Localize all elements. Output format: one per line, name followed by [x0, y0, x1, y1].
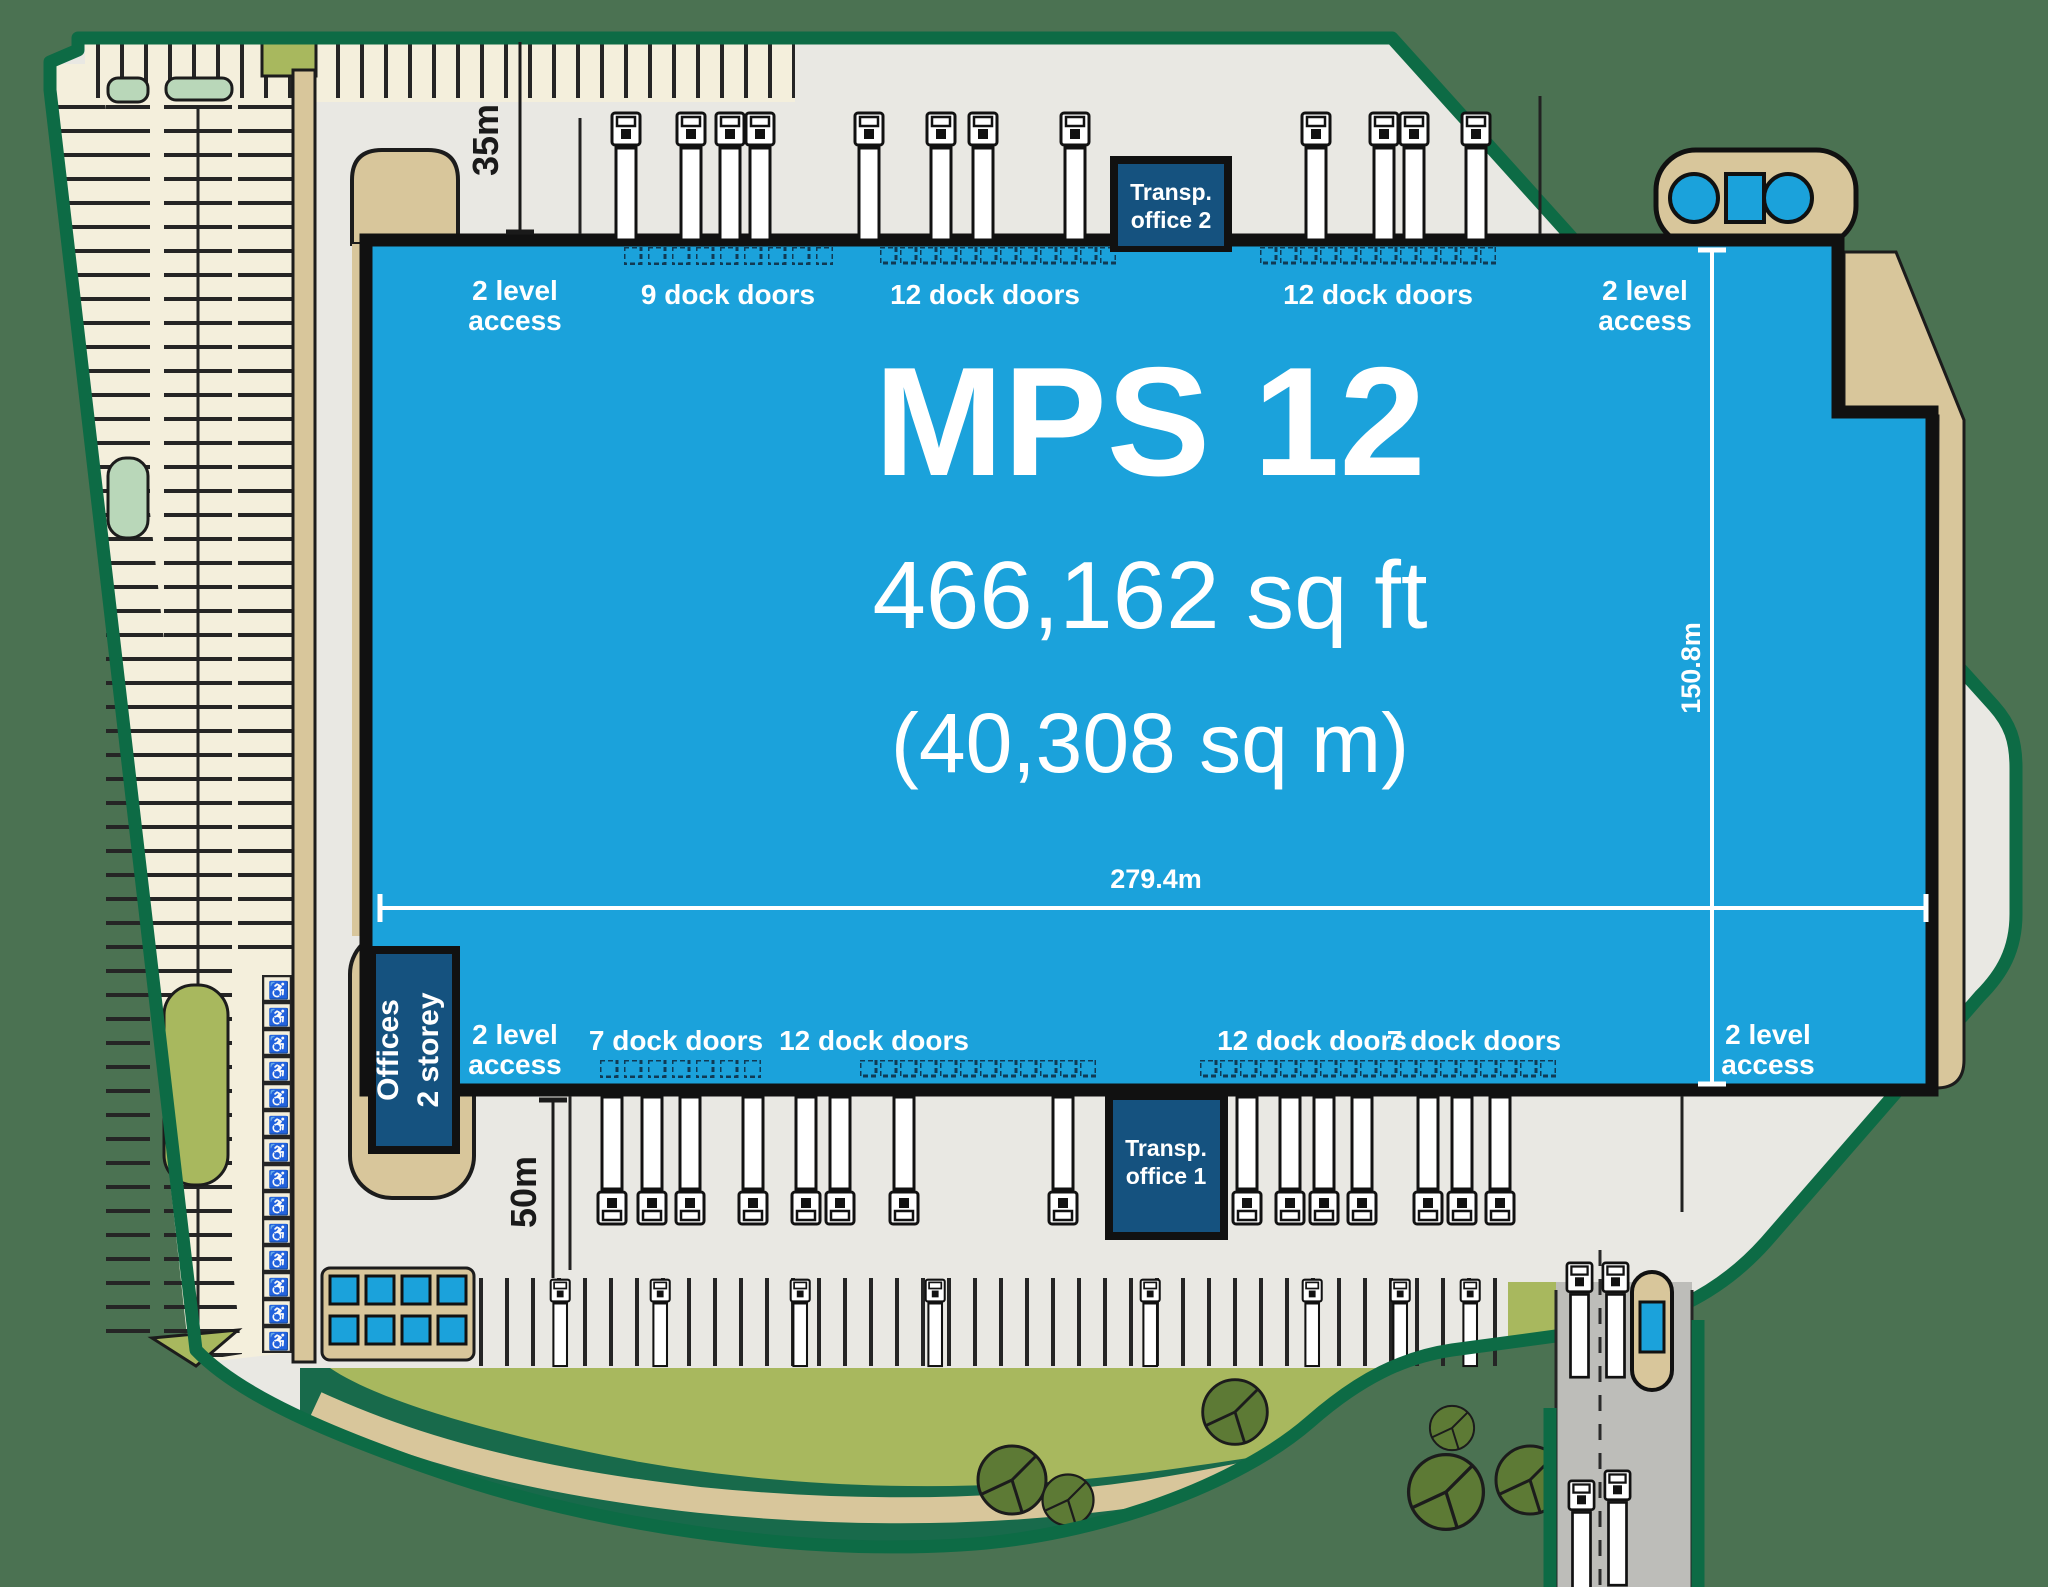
bush-icon [1203, 1380, 1268, 1445]
label-dock-n2: 12 dock doors [890, 279, 1080, 310]
truck-icon [1569, 1481, 1594, 1587]
label-dock-n3: 12 dock doors [1283, 279, 1473, 310]
dock-doors-north-12a [880, 247, 1116, 265]
truck-icon [1391, 1280, 1410, 1366]
truck-icon [791, 1280, 810, 1366]
building-area-metric: (40,308 sq m) [891, 696, 1409, 790]
truck-icon [1049, 1097, 1077, 1224]
truck-icon [826, 1097, 854, 1224]
parking-row-east [238, 104, 292, 968]
apron-north [352, 150, 458, 244]
offices-label-1: Offices [372, 999, 405, 1101]
truck-icon [1605, 1471, 1630, 1585]
warehouse-building: 2 level access 9 dock doors 12 dock door… [366, 240, 1932, 1090]
truck-icon [1567, 1263, 1592, 1377]
trailer-parking-row [478, 1278, 1508, 1366]
site-plan: ♿ [0, 0, 2048, 1587]
truck-icon [1276, 1097, 1304, 1224]
truck-icon [1141, 1280, 1160, 1366]
accessible-parking-column [262, 975, 292, 1353]
sprinkler-tank-icon [1670, 174, 1718, 222]
label-access-se: 2 level [1725, 1019, 1811, 1050]
dock-doors-south-7b [1420, 1060, 1556, 1078]
truck-icon [855, 113, 883, 240]
truck-icon [1302, 113, 1330, 240]
label-dock-s2: 12 dock doors [779, 1025, 969, 1056]
entrance-road [1550, 1250, 1698, 1587]
sidewalk [293, 70, 315, 1362]
label-access-ne: 2 level [1602, 275, 1688, 306]
transport-office-2-building [1118, 164, 1224, 246]
truck-icon [739, 1097, 767, 1224]
bush-icon [1043, 1475, 1094, 1526]
bush-icon [1409, 1455, 1484, 1530]
dock-doors-north-12b [1260, 247, 1496, 265]
truck-icon [969, 113, 997, 240]
dimension-south-yard-label: 50m [503, 1156, 544, 1228]
sprinkler-tank-icon [1764, 174, 1812, 222]
truck-icon [612, 113, 640, 240]
truck-icon [676, 1097, 704, 1224]
truck-icon [890, 1097, 918, 1224]
truck-icon [1233, 1097, 1261, 1224]
truck-icon [716, 113, 744, 240]
truck-icon [926, 1280, 945, 1366]
label-access-nw-2: access [468, 305, 561, 336]
truck-icon [677, 113, 705, 240]
truck-icon [1462, 113, 1490, 240]
truck-icon [598, 1097, 626, 1224]
truck-icon [1370, 113, 1398, 240]
truck-icon [1603, 1263, 1628, 1377]
label-dock-n1: 9 dock doors [641, 279, 815, 310]
planting-island [108, 78, 148, 102]
label-dock-s3: 12 dock doors [1217, 1025, 1407, 1056]
offices-label-2: 2 storey [412, 992, 445, 1107]
label-access-se-2: access [1721, 1049, 1814, 1080]
planting-island [166, 78, 232, 100]
truck-icon [1414, 1097, 1442, 1224]
bush-icon [978, 1446, 1046, 1514]
label-access-sw-2: access [468, 1049, 561, 1080]
truck-icon [1486, 1097, 1514, 1224]
transport-office-2: Transp. office 2 [1110, 156, 1232, 252]
pump-house-icon [1726, 174, 1764, 222]
truck-icon [746, 113, 774, 240]
dock-doors-south-12a [860, 1060, 1096, 1078]
truck-icon [551, 1280, 570, 1366]
building-name: MPS 12 [874, 335, 1425, 508]
dock-doors-south-7a [600, 1060, 761, 1078]
site-plan-drawing: ♿ [0, 0, 2048, 1587]
offices-block: Offices 2 storey [368, 946, 460, 1154]
transport-office-2-label-1: Transp. [1130, 179, 1212, 205]
truck-icon [1348, 1097, 1376, 1224]
truck-icon [792, 1097, 820, 1224]
bush-icon [1430, 1406, 1474, 1450]
truck-icon [927, 113, 955, 240]
transport-office-1: Transp. office 1 [1105, 1092, 1228, 1240]
dimension-north-yard-label: 35m [465, 104, 506, 176]
dock-doors-south-12b [1200, 1060, 1436, 1078]
transport-office-1-label-1: Transp. [1125, 1135, 1207, 1161]
truck-icon [1400, 113, 1428, 240]
truck-icon [651, 1280, 670, 1366]
transport-office-1-label-2: office 1 [1126, 1163, 1207, 1189]
dimension-width-label: 279.4m [1110, 864, 1202, 894]
truck-icon [1303, 1280, 1322, 1366]
building-area-imperial: 466,162 sq ft [872, 542, 1427, 649]
truck-icon [1448, 1097, 1476, 1224]
dimension-depth-label: 150.8m [1676, 622, 1706, 714]
truck-icon [638, 1097, 666, 1224]
truck-icon [1061, 113, 1089, 240]
trailer-yard [322, 1268, 1508, 1366]
label-access-ne-2: access [1598, 305, 1691, 336]
transport-office-2-label-2: office 2 [1131, 207, 1212, 233]
gatehouse [1640, 1302, 1664, 1352]
truck-icon [1310, 1097, 1338, 1224]
dock-doors-north-9 [624, 247, 833, 265]
label-dock-s4: 7 dock doors [1387, 1025, 1561, 1056]
planting-island [108, 458, 148, 538]
label-access-nw: 2 level [472, 275, 558, 306]
label-dock-s1: 7 dock doors [589, 1025, 763, 1056]
label-access-sw: 2 level [472, 1019, 558, 1050]
